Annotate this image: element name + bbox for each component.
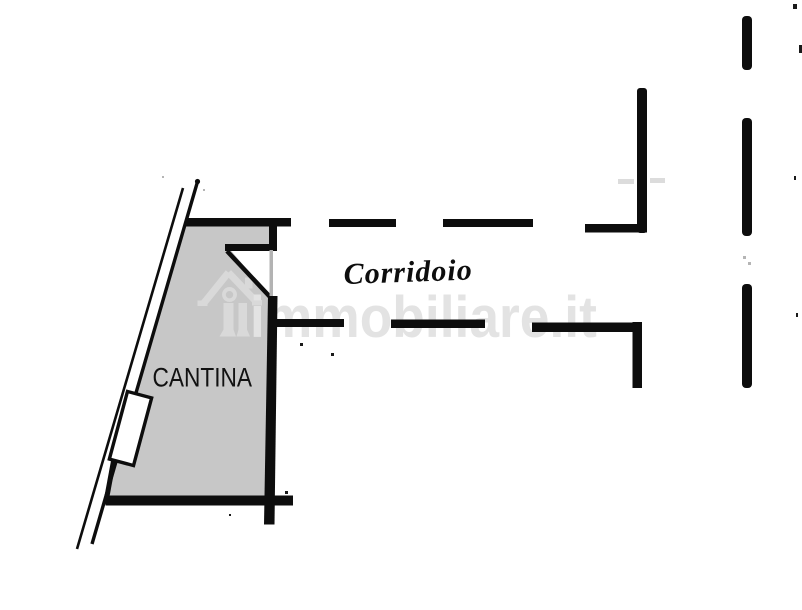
svg-text:CANTINA: CANTINA <box>153 363 253 393</box>
svg-text:Corridoio: Corridoio <box>343 254 473 291</box>
svg-text:immobiliare.it: immobiliare.it <box>250 285 597 350</box>
